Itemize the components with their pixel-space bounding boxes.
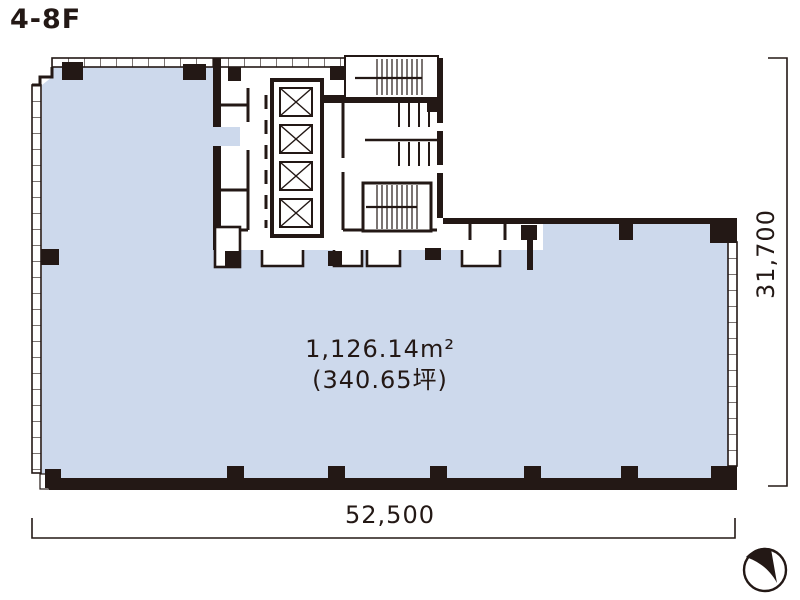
corridor-notch xyxy=(213,127,240,146)
compass-icon xyxy=(744,548,786,591)
elevator-bank xyxy=(266,80,322,236)
column xyxy=(328,466,345,479)
stairs-south-icon xyxy=(363,183,431,231)
curtain-wall-left xyxy=(32,85,41,473)
column xyxy=(430,466,447,479)
column xyxy=(711,466,737,490)
area-label: 1,126.14m² (340.65坪) xyxy=(255,334,505,396)
column xyxy=(425,248,441,260)
column xyxy=(328,251,342,266)
floor-title: 4-8F xyxy=(10,4,81,35)
area-tsubo: (340.65坪) xyxy=(255,365,505,396)
column xyxy=(524,466,541,479)
column xyxy=(330,66,344,80)
stairs-north-icon xyxy=(345,56,438,98)
column xyxy=(619,224,633,240)
area-sqm: 1,126.14m² xyxy=(255,334,505,365)
depth-dimension-label: 31,700 xyxy=(716,204,800,304)
column xyxy=(228,67,241,81)
column xyxy=(225,251,239,266)
column xyxy=(41,249,59,265)
column xyxy=(183,64,206,80)
column xyxy=(521,225,537,240)
column xyxy=(62,62,83,80)
column xyxy=(621,466,638,479)
exterior-wall-right-wing xyxy=(443,218,737,224)
column xyxy=(227,466,244,479)
width-dimension-label: 52,500 xyxy=(285,501,495,529)
floor-plan-page: 4-8F 1,126.14m² (340.65坪) 52,500 31,700 xyxy=(0,0,800,600)
